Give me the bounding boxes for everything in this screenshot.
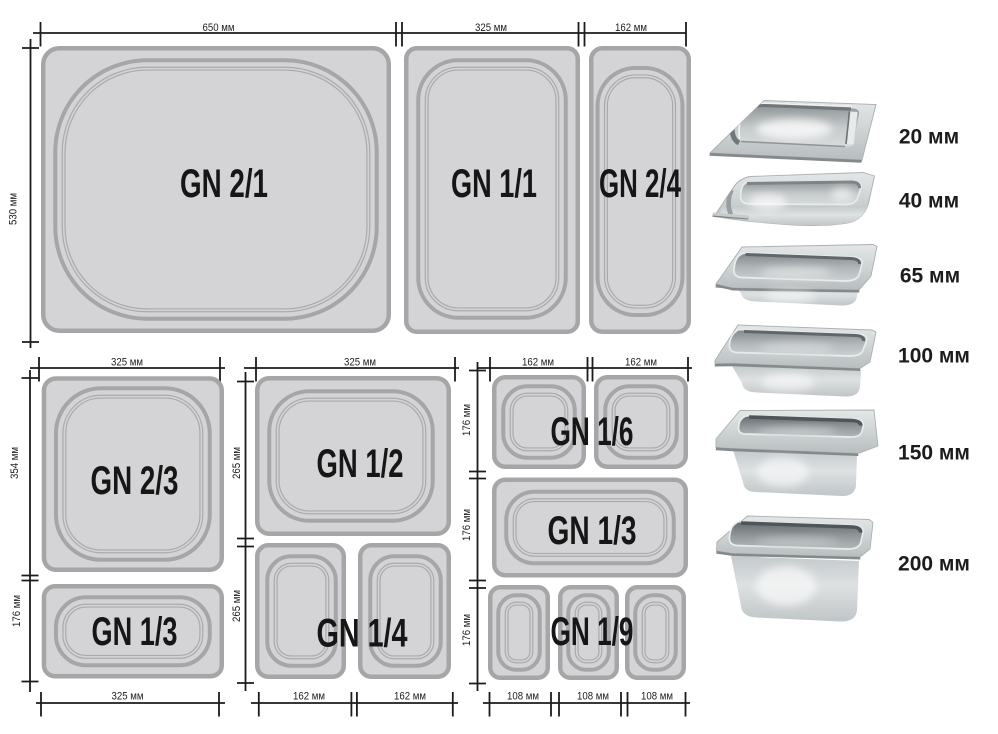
svg-text:GN 1/4: GN 1/4 <box>317 612 408 656</box>
svg-text:162 мм: 162 мм <box>615 22 647 34</box>
svg-text:200 мм: 200 мм <box>898 553 970 576</box>
svg-text:176 мм: 176 мм <box>461 404 473 436</box>
svg-text:176 мм: 176 мм <box>461 614 473 646</box>
svg-text:65 мм: 65 мм <box>900 265 960 288</box>
svg-text:GN 1/3: GN 1/3 <box>548 509 637 553</box>
svg-text:265 мм: 265 мм <box>231 590 243 622</box>
svg-text:265 мм: 265 мм <box>231 447 243 479</box>
svg-text:GN 1/3: GN 1/3 <box>92 610 178 654</box>
svg-text:20 мм: 20 мм <box>899 126 959 149</box>
svg-text:GN 1/2: GN 1/2 <box>317 442 404 486</box>
svg-text:108 мм: 108 мм <box>577 691 609 703</box>
svg-text:162 мм: 162 мм <box>394 691 426 703</box>
svg-text:GN 1/1: GN 1/1 <box>451 162 537 206</box>
svg-text:354 мм: 354 мм <box>9 447 21 479</box>
svg-text:162 мм: 162 мм <box>625 356 657 368</box>
svg-text:108 мм: 108 мм <box>641 691 673 703</box>
svg-text:100 мм: 100 мм <box>898 345 970 368</box>
svg-text:GN 1/6: GN 1/6 <box>551 410 634 454</box>
svg-text:40 мм: 40 мм <box>899 190 959 213</box>
svg-text:325 мм: 325 мм <box>112 691 144 703</box>
svg-text:GN 2/4: GN 2/4 <box>599 162 681 206</box>
svg-text:176 мм: 176 мм <box>461 509 473 541</box>
svg-text:162 мм: 162 мм <box>522 356 554 368</box>
svg-text:325 мм: 325 мм <box>475 22 507 34</box>
svg-text:176 мм: 176 мм <box>11 595 23 627</box>
svg-text:GN 2/3: GN 2/3 <box>91 459 179 503</box>
svg-text:325 мм: 325 мм <box>344 356 376 368</box>
svg-text:325 мм: 325 мм <box>111 356 143 368</box>
svg-text:GN 1/9: GN 1/9 <box>551 610 634 654</box>
svg-text:650 мм: 650 мм <box>203 22 235 34</box>
svg-text:108 мм: 108 мм <box>507 691 539 703</box>
svg-text:530 мм: 530 мм <box>8 193 20 225</box>
svg-text:GN 2/1: GN 2/1 <box>180 162 268 206</box>
svg-text:150 мм: 150 мм <box>898 442 970 465</box>
svg-text:162 мм: 162 мм <box>293 691 325 703</box>
